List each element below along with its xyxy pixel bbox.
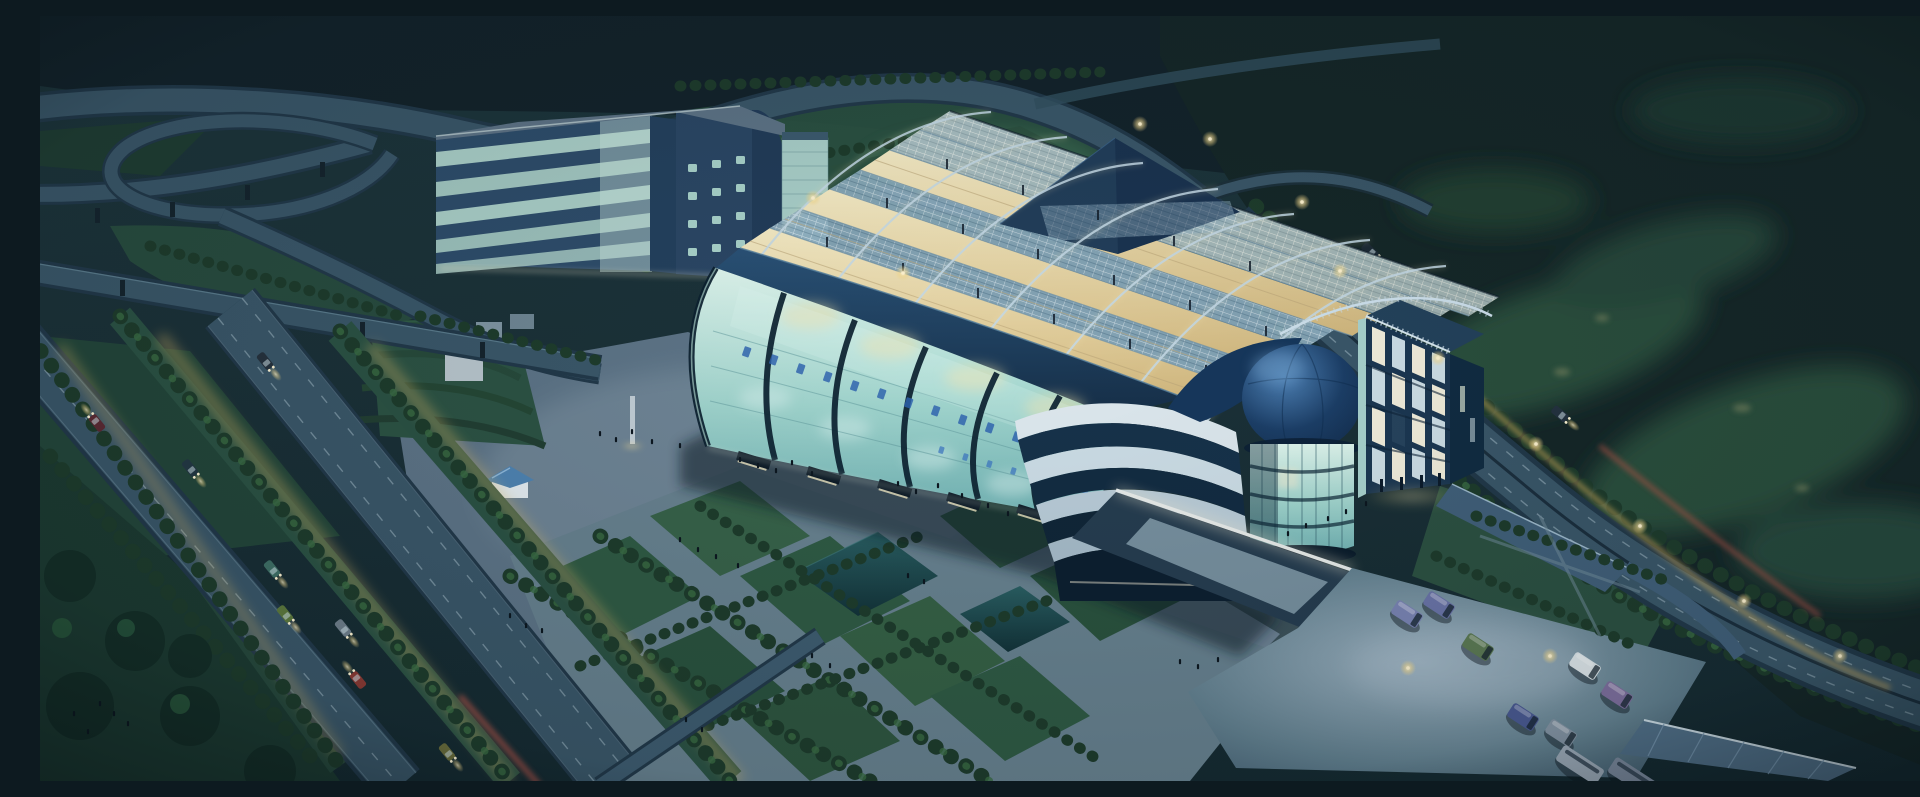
- vignette: [40, 16, 1920, 781]
- rendering-canvas: [40, 16, 1920, 781]
- architectural-rendering: [40, 16, 1920, 781]
